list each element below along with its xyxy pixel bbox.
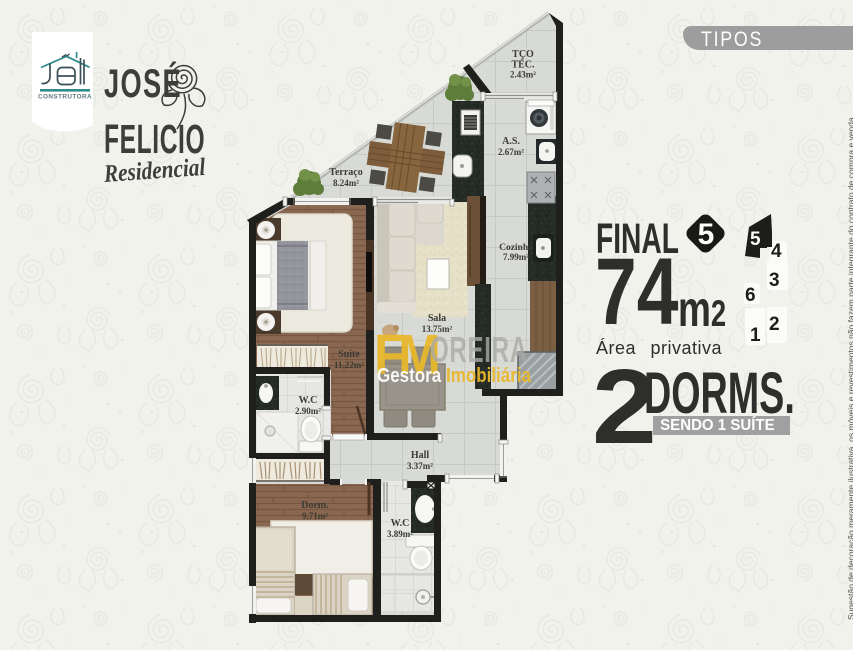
svg-text:3.89m²: 3.89m² <box>387 529 413 539</box>
svg-text:Dorm.: Dorm. <box>301 500 329 511</box>
svg-text:CONSTRUTORA: CONSTRUTORA <box>38 94 92 101</box>
svg-text:8.24m²: 8.24m² <box>333 178 359 188</box>
svg-text:5: 5 <box>750 229 761 250</box>
svg-text:2.67m²: 2.67m² <box>498 147 524 157</box>
svg-text:W.C: W.C <box>391 518 410 529</box>
svg-text:2: 2 <box>769 314 780 335</box>
svg-text:9.71m²: 9.71m² <box>302 511 328 521</box>
svg-text:2.43m²: 2.43m² <box>510 70 536 80</box>
svg-text:6: 6 <box>745 285 756 306</box>
svg-text:1: 1 <box>750 325 761 346</box>
svg-text:4: 4 <box>771 241 782 262</box>
svg-text:Suite: Suite <box>338 349 360 360</box>
svg-text:2.90m²: 2.90m² <box>295 406 321 416</box>
svg-text:W.C: W.C <box>299 395 318 406</box>
svg-text:3.37m²: 3.37m² <box>407 461 433 471</box>
svg-text:Hall: Hall <box>411 450 430 461</box>
svg-text:7.99m²: 7.99m² <box>503 252 529 262</box>
svg-text:11.22m²: 11.22m² <box>334 360 364 370</box>
svg-text:3: 3 <box>769 270 780 291</box>
svg-text:TÇO: TÇO <box>512 49 534 60</box>
svg-text:Terraço: Terraço <box>329 167 363 178</box>
svg-text:A.S.: A.S. <box>502 136 520 147</box>
